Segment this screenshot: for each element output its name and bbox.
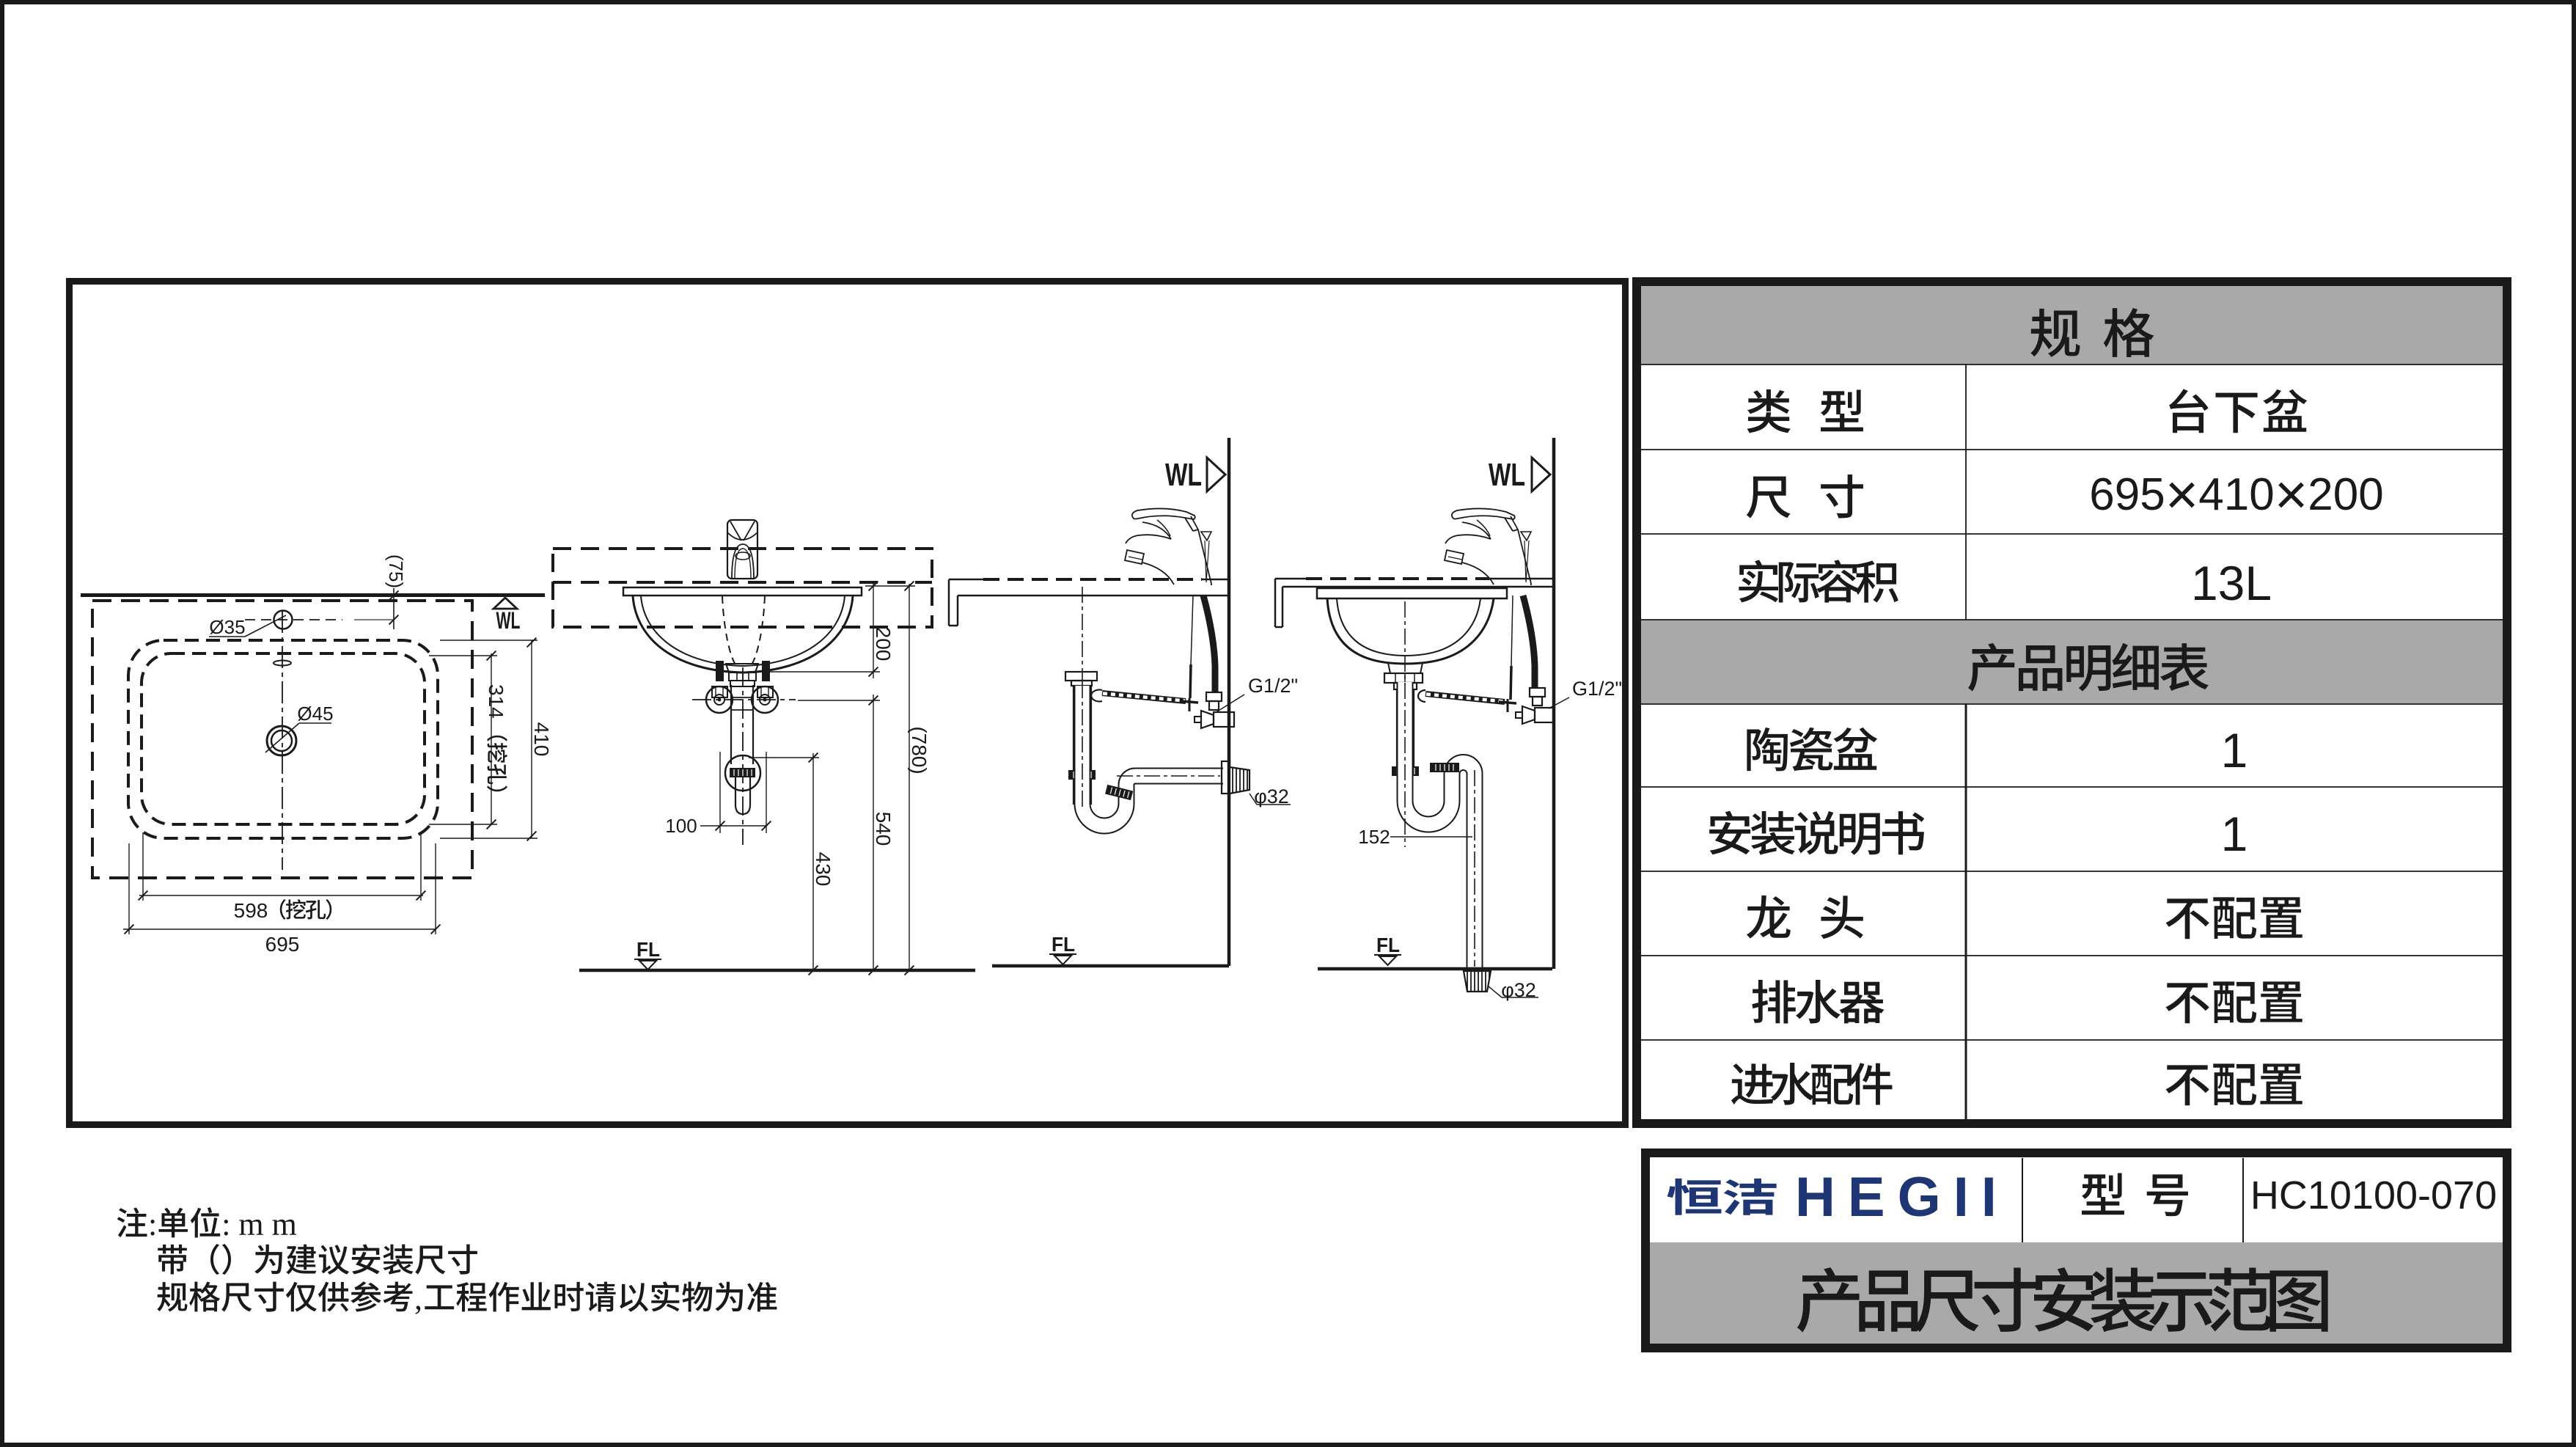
svg-text:HEGII: HEGII bbox=[1795, 1166, 2009, 1228]
svg-text:1: 1 bbox=[2221, 807, 2248, 861]
svg-text:410: 410 bbox=[530, 722, 553, 757]
svg-text:100: 100 bbox=[665, 815, 697, 837]
svg-text:598: 598 bbox=[234, 899, 268, 922]
svg-text:13L: 13L bbox=[2191, 556, 2272, 610]
svg-text:430: 430 bbox=[812, 852, 834, 887]
svg-text:314: 314 bbox=[485, 684, 507, 719]
svg-text:WL: WL bbox=[1165, 457, 1202, 493]
svg-text:152: 152 bbox=[1358, 826, 1390, 848]
svg-text:(75): (75) bbox=[385, 554, 407, 588]
svg-text:FL: FL bbox=[1052, 933, 1075, 956]
svg-text:,: , bbox=[414, 1281, 422, 1316]
svg-text:695: 695 bbox=[265, 933, 300, 956]
svg-text:Ø35: Ø35 bbox=[209, 616, 245, 638]
svg-text:1: 1 bbox=[2221, 723, 2248, 777]
svg-text:(780): (780) bbox=[908, 726, 931, 774]
svg-text:WL: WL bbox=[496, 607, 521, 634]
svg-text:FL: FL bbox=[1376, 934, 1400, 956]
svg-text:540: 540 bbox=[872, 812, 895, 846]
svg-text:HC10100-070: HC10100-070 bbox=[2250, 1173, 2497, 1217]
svg-text:G1/2": G1/2" bbox=[1248, 675, 1298, 697]
svg-text:695×410×200: 695×410×200 bbox=[2089, 462, 2383, 527]
svg-text:WL: WL bbox=[1489, 457, 1525, 493]
svg-text:: m m: : m m bbox=[221, 1206, 297, 1242]
svg-text:Ø45: Ø45 bbox=[297, 703, 333, 725]
svg-text::: : bbox=[148, 1206, 157, 1242]
svg-text:FL: FL bbox=[636, 938, 660, 961]
svg-text:G1/2": G1/2" bbox=[1572, 678, 1622, 700]
svg-text:200: 200 bbox=[872, 627, 895, 662]
